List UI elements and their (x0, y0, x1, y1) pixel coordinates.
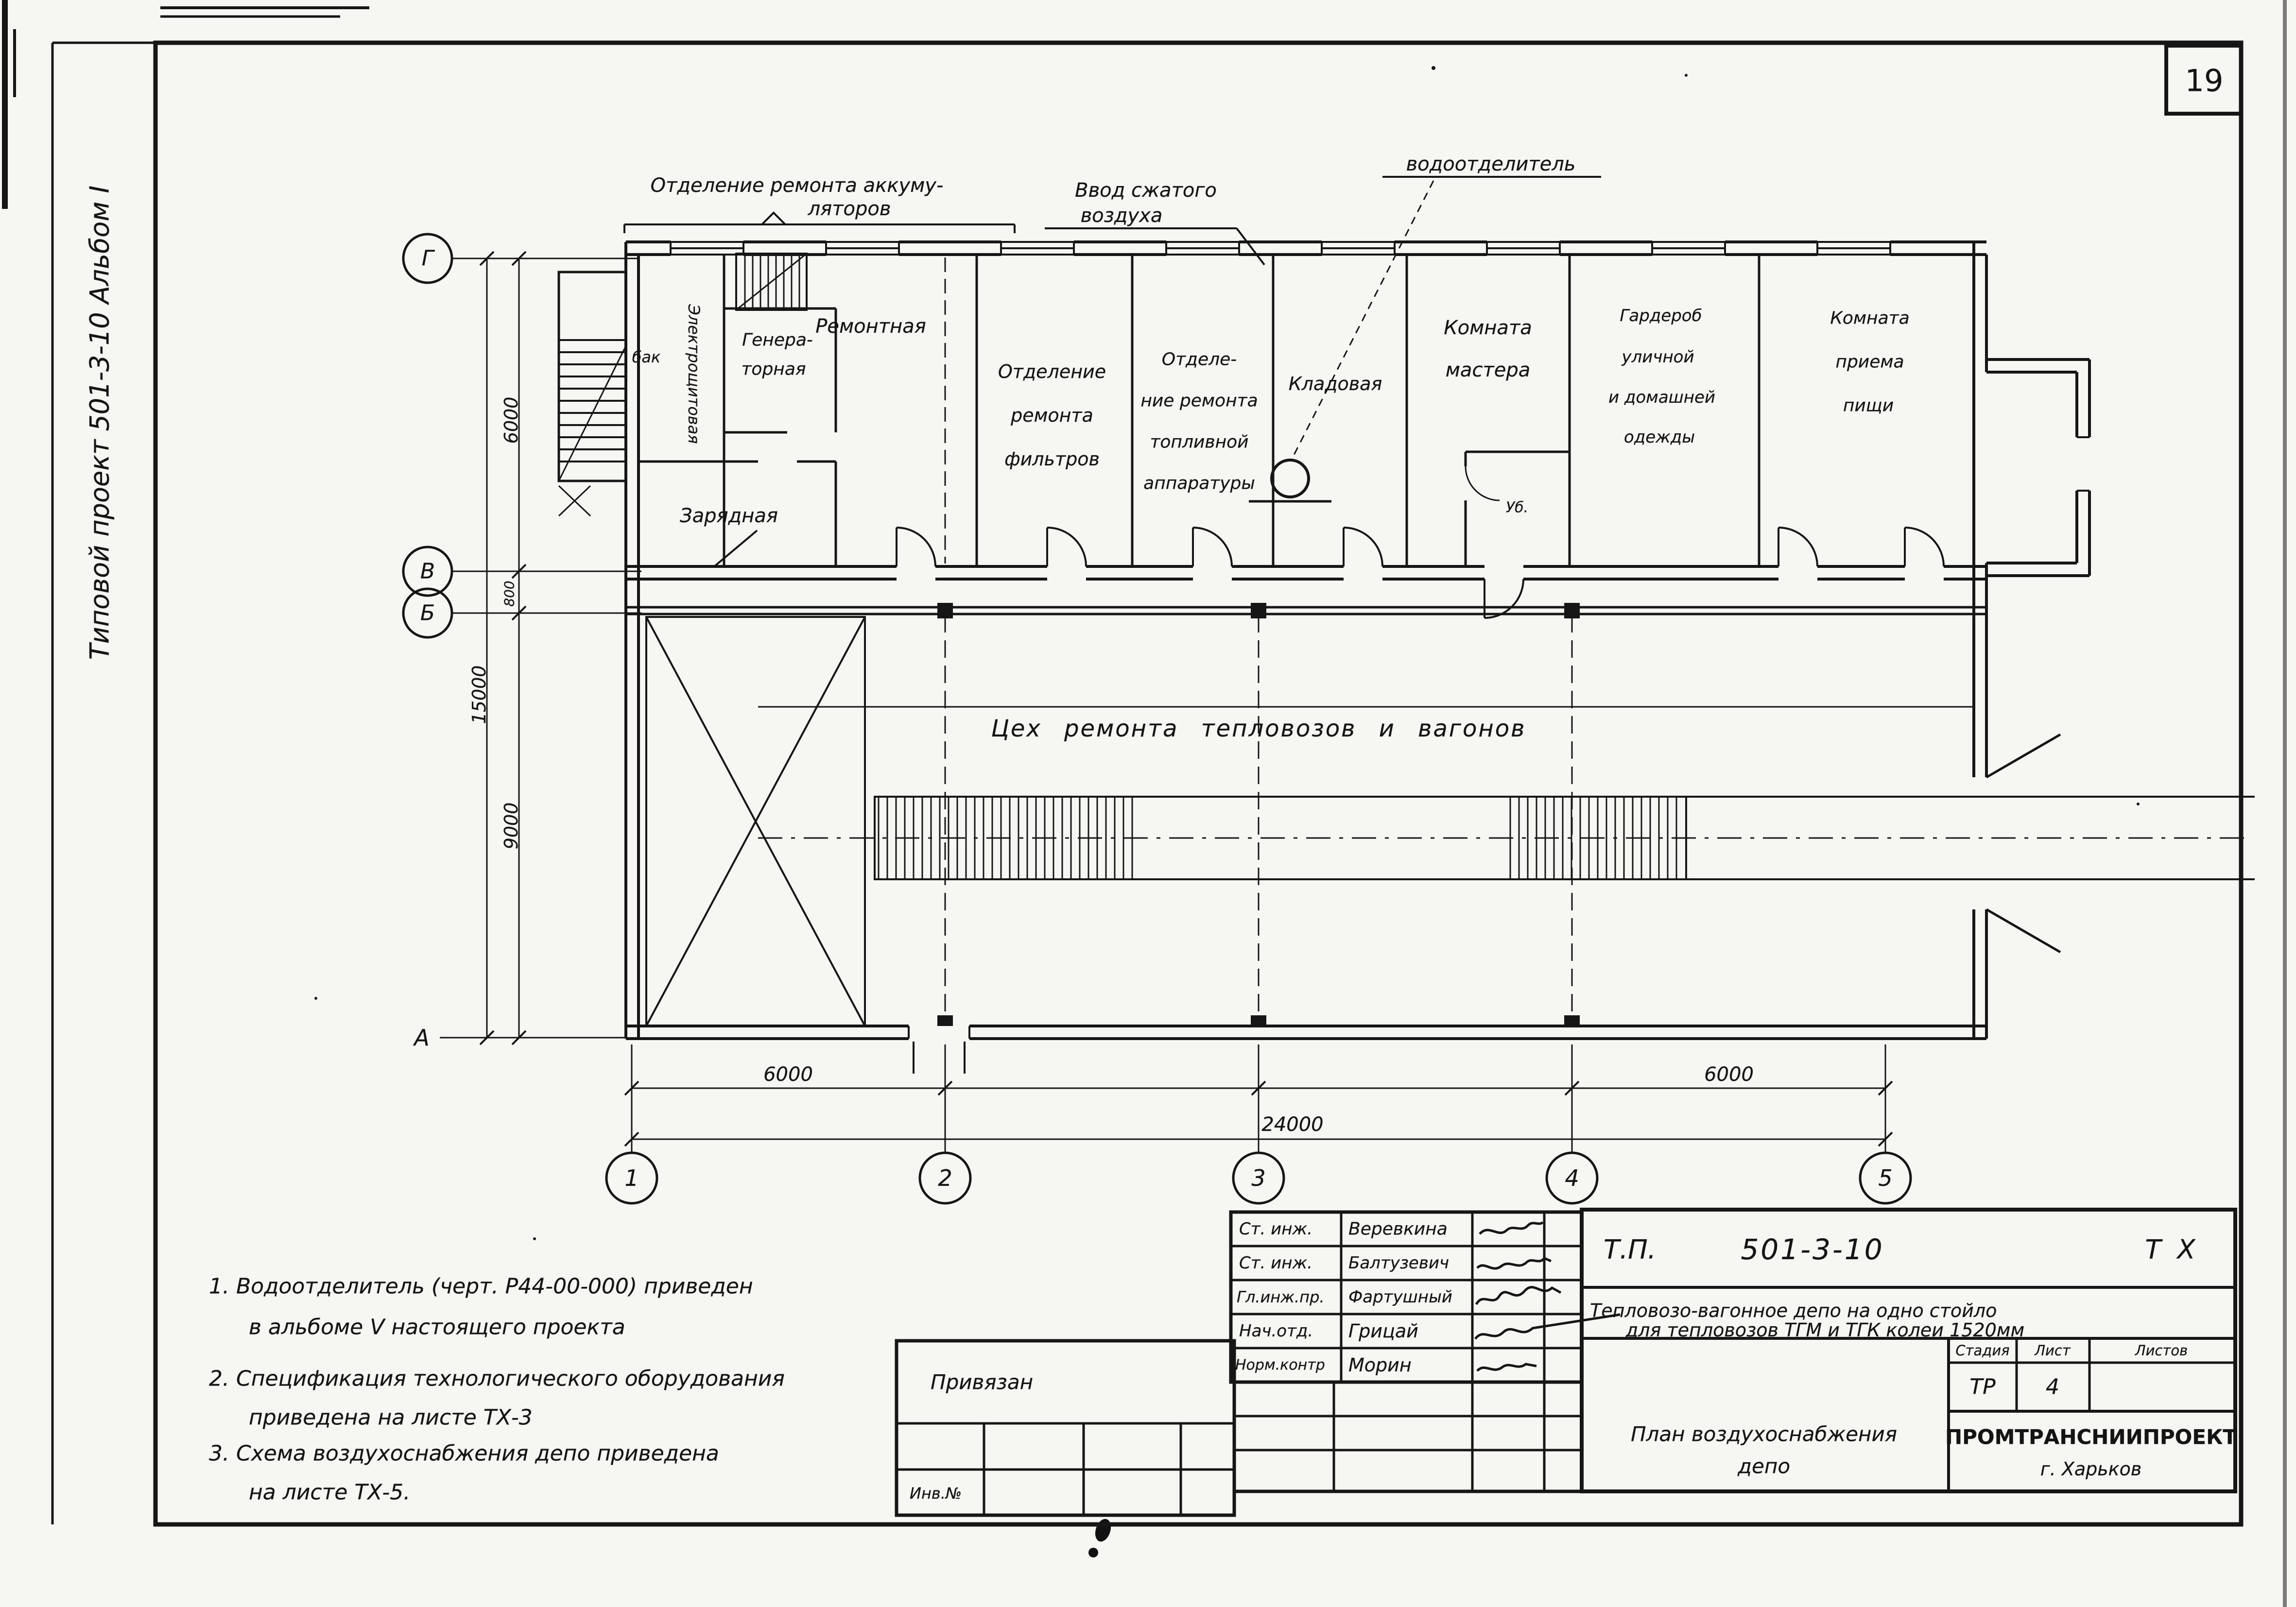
building-walls (626, 242, 1986, 1039)
dim-total-width: 24000 (1261, 1113, 1323, 1136)
dim-span-1-2: 6000 (763, 1063, 813, 1086)
room-label-wardrobe-line1: Гардероб (1620, 306, 1702, 325)
attached-label: Привязан (931, 1370, 1033, 1394)
doc-prefix: Т.П. (1604, 1234, 1656, 1265)
staff-name-5: Морин (1348, 1354, 1412, 1376)
room-label-fuel-line3: топливной (1150, 432, 1248, 452)
room-label-filters-line1: Отделение (998, 361, 1106, 382)
room-label-master-line2: мастера (1446, 359, 1531, 381)
project-title-line2: для тепловозов ТГМ и ТГК колеи 1520мм (1625, 1319, 2024, 1341)
sheet-number: 19 (2185, 63, 2224, 99)
organization-name: ПРОМТРАНСНИИПРОЕКТ (1945, 1425, 2237, 1449)
axis-number-4: 4 (1565, 1165, 1579, 1191)
axis-label-v: В (420, 559, 435, 584)
interior-partitions (626, 254, 1986, 614)
axis-number-5: 5 (1878, 1165, 1892, 1191)
dim-span-4-5: 6000 (1704, 1063, 1754, 1086)
vestibule-annex (1984, 359, 2092, 576)
axis-label-a: А (414, 1025, 429, 1051)
dim-row-g-v: 6000 (501, 397, 522, 444)
staff-role-1: Ст. инж. (1239, 1219, 1312, 1239)
external-stair (559, 272, 626, 516)
room-label-dining-line1: Комната (1830, 308, 1909, 328)
room-label-master-line1: Комната (1444, 317, 1532, 339)
list-value: 4 (2046, 1375, 2059, 1400)
dim-row-b-a: 9000 (501, 803, 522, 850)
note-3-line-1: 3. Схема воздухоснабжения депо приведена (209, 1441, 719, 1466)
note-1-line-2: в альбоме V настоящего проекта (249, 1315, 625, 1340)
project-title-line1: Тепловозо-вагонное депо на одно стойло (1590, 1300, 1997, 1321)
staff-name-4: Грицай (1348, 1320, 1418, 1342)
note-3-line-2: на листе ТХ-5. (249, 1480, 410, 1505)
door-symbols (897, 528, 1944, 618)
callout-accumulator-line1: Отделение ремонта аккуму- (651, 174, 944, 197)
room-label-charging: Зарядная (680, 505, 778, 527)
axis-number-3: 3 (1251, 1165, 1265, 1191)
room-label-electrical: Электрощитовая (685, 304, 703, 444)
signature (1477, 1364, 1536, 1371)
stage-value: ТР (1969, 1375, 1995, 1400)
dim-row-v-b: 800 (501, 581, 518, 606)
doc-number: 501-3-10 (1741, 1233, 1884, 1266)
room-label-dining-line2: приема (1835, 352, 1904, 372)
stage-label: Стадия (1955, 1342, 2009, 1359)
callout-accumulator-line2: ляторов (808, 198, 891, 220)
room-label-fuel-line1: Отделе- (1162, 350, 1237, 370)
note-2-line-2: приведена на листе ТХ-3 (249, 1405, 533, 1430)
note-2-line-1: 2. Спецификация технологического оборудо… (209, 1367, 785, 1391)
axis-label-b: Б (420, 601, 435, 626)
staff-name-1: Веревкина (1348, 1219, 1448, 1239)
drawing-sheet: Типовой проект 501-3-10 Альбом I 19 Отде… (0, 0, 2296, 1607)
margin-note: Типовой проект 501-3-10 Альбом I (85, 186, 115, 660)
signature (1477, 1258, 1551, 1268)
callout-air-line1: Ввод сжатого (1075, 179, 1217, 202)
staff-role-5: Норм.контр (1235, 1357, 1325, 1374)
room-label-storeroom: Кладовая (1289, 373, 1382, 394)
sheet-title-line1: План воздухоснабжения (1631, 1422, 1897, 1446)
signature (1476, 1287, 1561, 1304)
room-label-filters-line3: фильтров (1004, 448, 1100, 470)
list-label: Лист (2035, 1342, 2071, 1359)
room-label-generator-line1: Генера- (742, 330, 813, 350)
axis-number-1: 1 (624, 1165, 639, 1191)
callout-water-separator: водоотделитель (1406, 153, 1576, 175)
room-label-wardrobe-line2: уличной (1622, 347, 1694, 367)
inventory-label: Инв.№ (910, 1484, 962, 1503)
room-label-fuel-line2: ние ремонта (1140, 391, 1258, 411)
row-axes (403, 234, 641, 1038)
lists-label: Листов (2135, 1342, 2188, 1359)
room-label-dining-line3: пищи (1843, 396, 1894, 416)
signature (1480, 1222, 1543, 1234)
room-label-wc: Уб. (1506, 499, 1528, 516)
note-1-line-1: 1. Водоотделитель (черт. Р44-00-000) при… (209, 1274, 753, 1299)
staff-role-2: Ст. инж. (1239, 1253, 1312, 1273)
track-pit (758, 735, 2255, 952)
room-label-repair: Ремонтная (815, 315, 926, 338)
room-label-wardrobe-line3: и домашней (1608, 388, 1715, 407)
room-label-filters-line2: ремонта (1011, 405, 1093, 426)
room-label-hall: Цех ремонта тепловозов и вагонов (991, 715, 1526, 742)
callout-air-line2: воздуха (1081, 205, 1163, 227)
axis-number-2: 2 (938, 1165, 952, 1191)
staff-role-4: Нач.отд. (1239, 1321, 1313, 1341)
doc-mark: Т Х (2145, 1234, 2199, 1265)
left-dimensions (480, 252, 526, 1044)
room-label-fuel-line4: аппаратуры (1143, 474, 1255, 494)
organization-city: г. Харьков (2040, 1458, 2142, 1480)
dim-total-depth: 15000 (468, 666, 490, 724)
staff-name-3: Фартушный (1348, 1287, 1452, 1307)
axis-label-g: Г (422, 246, 434, 271)
staff-name-2: Балтузевич (1348, 1253, 1449, 1273)
room-label-wardrobe-line4: одежды (1624, 427, 1695, 447)
room-label-generator-line2: торная (741, 359, 806, 379)
room-label-tank: бак (632, 348, 661, 366)
sheet-title-line2: депо (1738, 1454, 1790, 1478)
titleblock-lines (897, 1210, 2235, 1515)
staff-role-3: Гл.инж.пр. (1237, 1288, 1325, 1306)
